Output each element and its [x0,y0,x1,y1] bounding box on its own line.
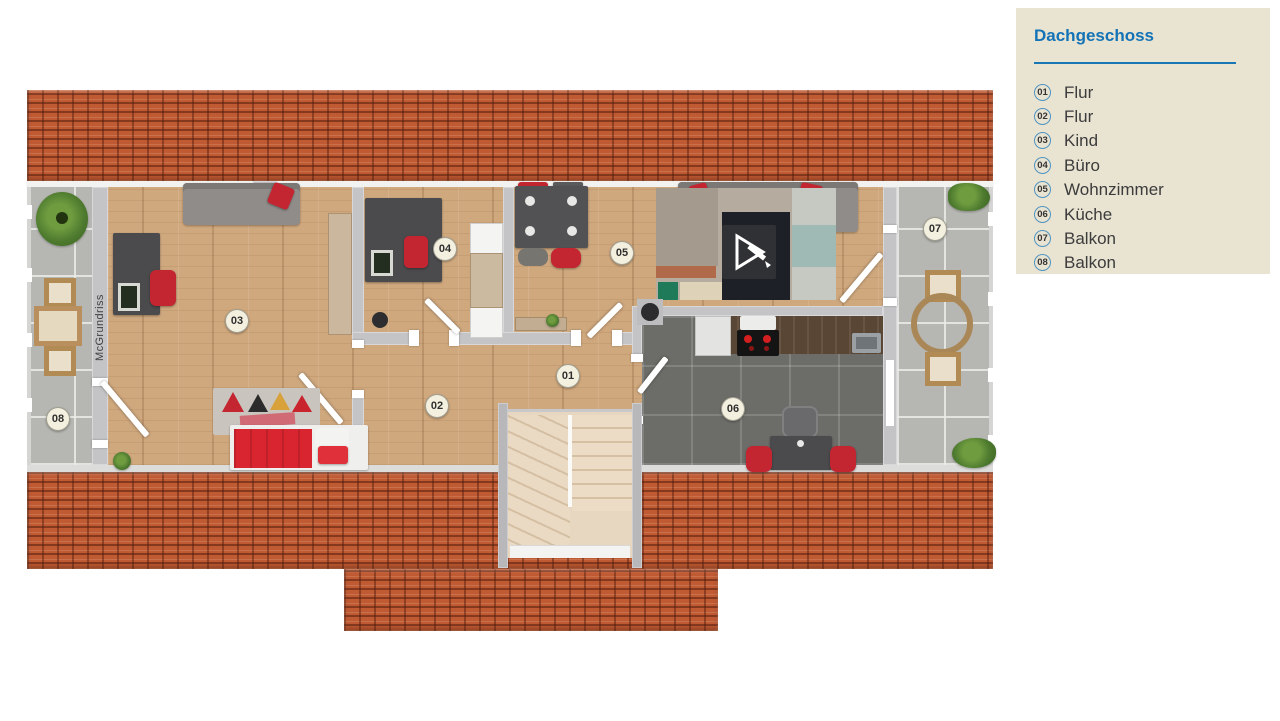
legend-badge: 02 [1034,108,1051,125]
legend-badge: 05 [1034,181,1051,198]
legend-badge: 01 [1034,84,1051,101]
room-badge-02: 02 [425,394,449,418]
legend-label: Wohnzimmer [1064,181,1164,198]
legend-badge: 08 [1034,254,1051,271]
legend-title-rule [1034,62,1236,64]
room-badge-03: 03 [225,309,249,333]
room-badge-06: 06 [721,397,745,421]
legend-label: Kind [1064,132,1098,149]
legend-item-06: 06Küche [1034,202,1254,226]
room-badge-04: 04 [433,237,457,261]
legend-list: 01Flur02Flur03Kind04Büro05Wohnzimmer06Kü… [1034,80,1254,275]
legend-badge: 07 [1034,230,1051,247]
room-badge-01: 01 [556,364,580,388]
legend-badge: 03 [1034,132,1051,149]
legend-label: Balkon [1064,254,1116,271]
legend-badge: 06 [1034,206,1051,223]
legend-label: Büro [1064,157,1100,174]
legend-badge: 04 [1034,157,1051,174]
legend-item-07: 07Balkon [1034,226,1254,250]
room-badge-05: 05 [610,241,634,265]
legend-item-03: 03Kind [1034,129,1254,153]
room-badge-07: 07 [923,217,947,241]
legend-label: Flur [1064,108,1093,125]
legend-item-08: 08Balkon [1034,251,1254,275]
legend-label: Flur [1064,84,1093,101]
legend-title: Dachgeschoss [1034,26,1154,46]
legend-item-04: 04Büro [1034,153,1254,177]
floorplan-page: McGrundriss 0102030405060708 Dachgeschos… [0,0,1280,721]
legend-panel: Dachgeschoss 01Flur02Flur03Kind04Büro05W… [1016,8,1270,274]
legend-item-05: 05Wohnzimmer [1034,178,1254,202]
legend-label: Balkon [1064,230,1116,247]
legend-item-02: 02Flur [1034,104,1254,128]
room-badge-08: 08 [46,407,70,431]
legend-label: Küche [1064,206,1112,223]
legend-item-01: 01Flur [1034,80,1254,104]
